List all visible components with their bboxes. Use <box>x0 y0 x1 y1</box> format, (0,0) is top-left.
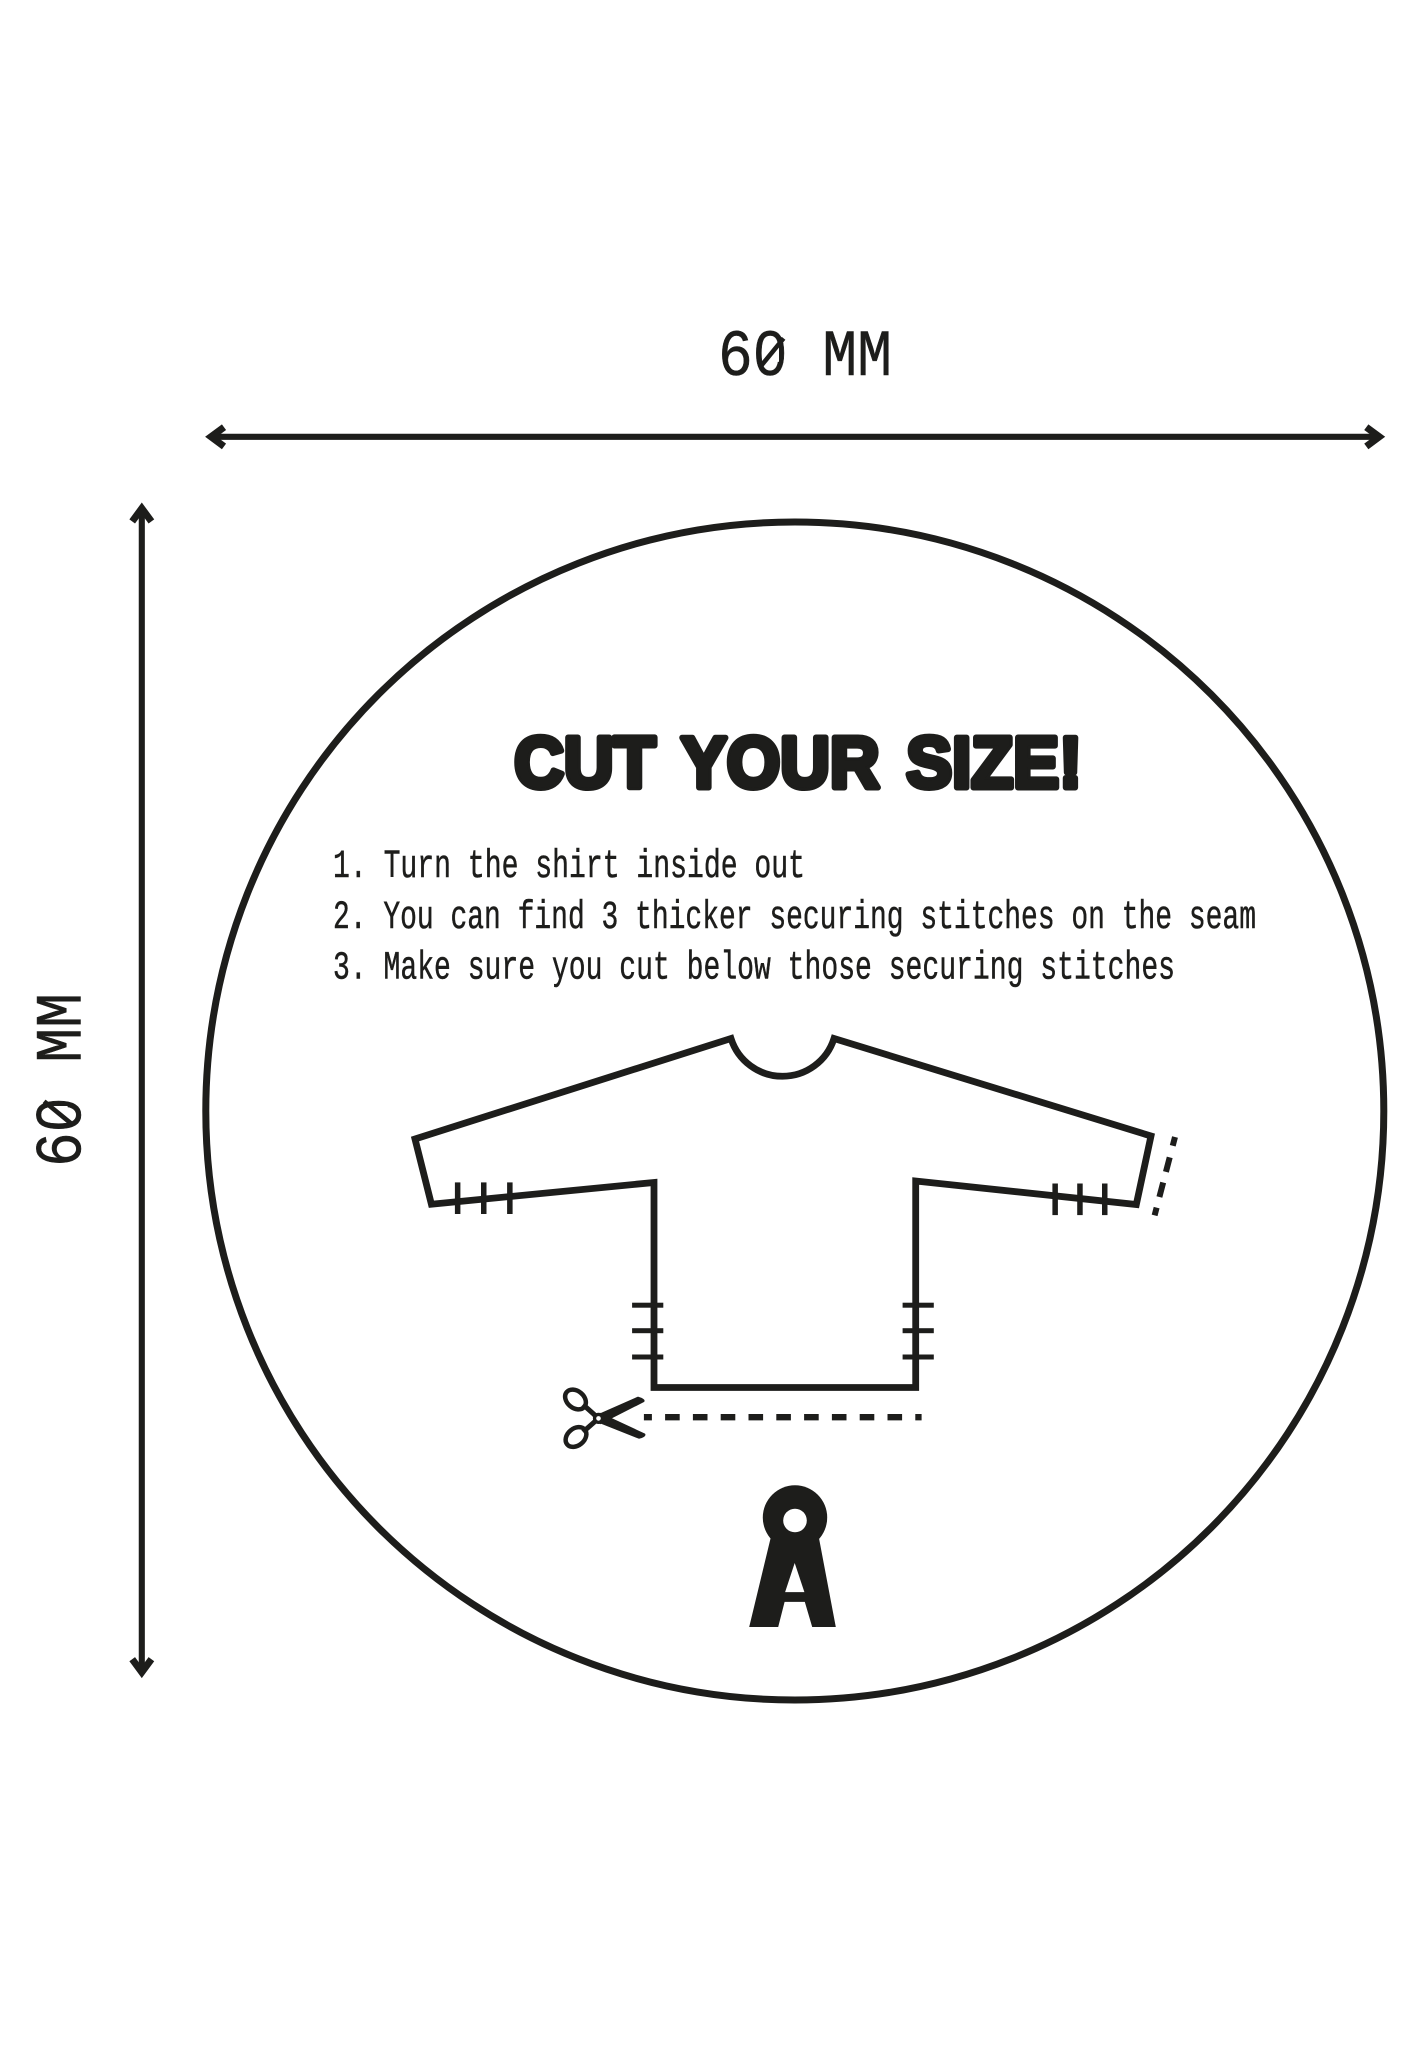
svg-text:60 MM: 60 MM <box>718 320 892 395</box>
svg-text:2. You can find 3 thicker secu: 2. You can find 3 thicker securing stitc… <box>333 896 1256 941</box>
svg-text:CUT YOUR SIZE!: CUT YOUR SIZE! <box>514 723 1082 804</box>
svg-text:1. Turn the shirt inside out: 1. Turn the shirt inside out <box>333 845 805 890</box>
svg-text:60 MM: 60 MM <box>26 993 101 1167</box>
svg-text:3. Make sure you cut below tho: 3. Make sure you cut below those securin… <box>333 947 1175 992</box>
